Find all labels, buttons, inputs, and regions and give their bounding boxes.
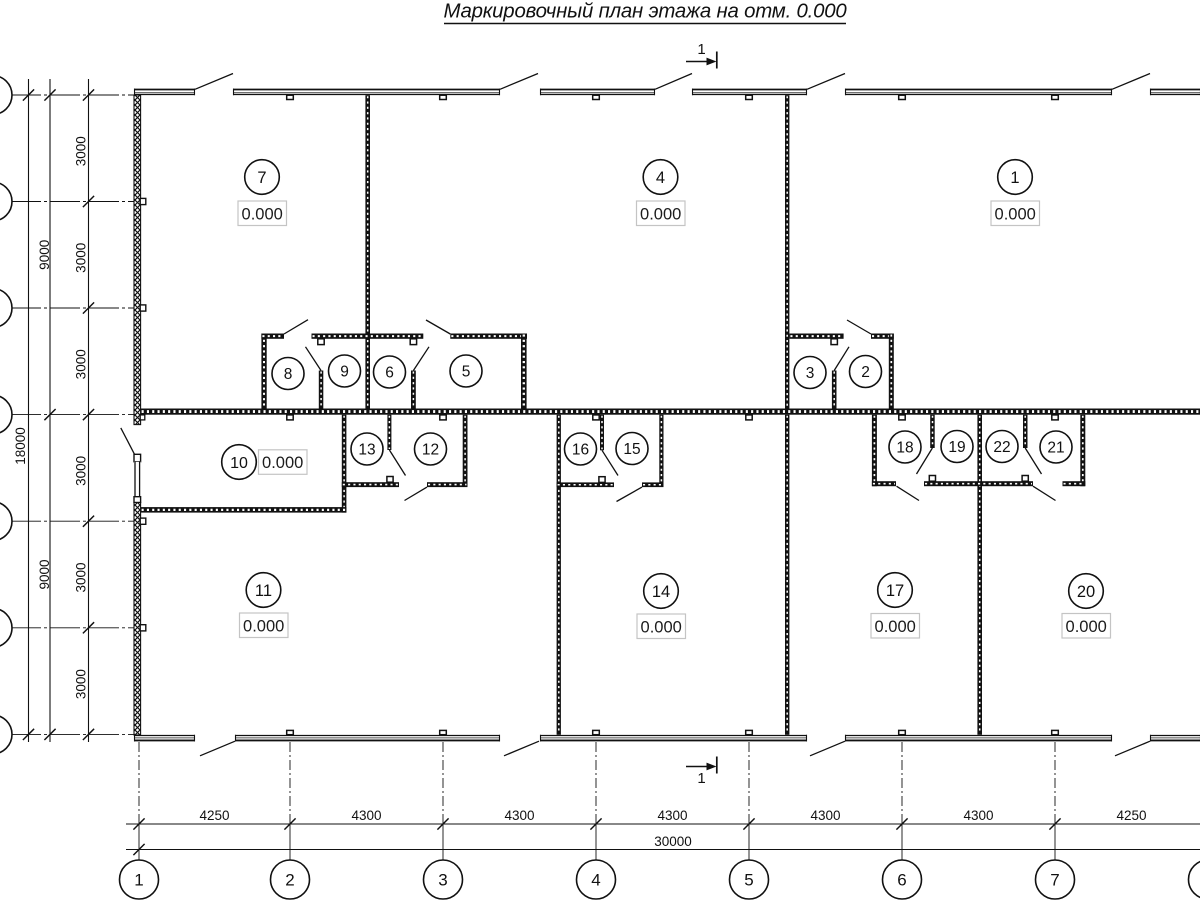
svg-text:0.000: 0.000 — [995, 205, 1036, 223]
svg-text:20: 20 — [1077, 583, 1095, 601]
svg-text:18: 18 — [896, 440, 913, 457]
svg-text:4300: 4300 — [810, 808, 840, 823]
svg-text:17: 17 — [886, 582, 904, 600]
svg-text:13: 13 — [358, 442, 375, 459]
svg-text:3: 3 — [438, 871, 447, 890]
svg-text:3: 3 — [806, 365, 815, 382]
svg-text:3000: 3000 — [74, 243, 89, 273]
svg-text:4250: 4250 — [1116, 808, 1146, 823]
svg-text:9000: 9000 — [37, 240, 52, 270]
svg-text:2: 2 — [285, 871, 294, 890]
svg-text:0.000: 0.000 — [875, 618, 916, 636]
svg-text:16: 16 — [572, 442, 589, 459]
svg-text:4250: 4250 — [199, 808, 229, 823]
svg-text:0.000: 0.000 — [242, 205, 283, 223]
svg-text:3000: 3000 — [74, 562, 89, 592]
svg-text:9: 9 — [340, 364, 349, 381]
svg-text:21: 21 — [1047, 440, 1064, 457]
svg-text:5: 5 — [744, 871, 753, 890]
svg-text:1: 1 — [1010, 169, 1019, 187]
svg-text:11: 11 — [255, 582, 272, 600]
svg-text:1: 1 — [134, 871, 143, 890]
svg-text:4300: 4300 — [963, 808, 993, 823]
svg-text:9000: 9000 — [37, 559, 52, 589]
svg-text:3000: 3000 — [74, 456, 89, 486]
svg-text:30000: 30000 — [654, 834, 692, 849]
svg-text:1: 1 — [697, 770, 705, 787]
svg-text:14: 14 — [652, 583, 670, 601]
svg-text:2: 2 — [861, 364, 870, 381]
svg-text:5: 5 — [462, 364, 471, 381]
svg-text:4300: 4300 — [351, 808, 381, 823]
svg-text:4300: 4300 — [504, 808, 534, 823]
svg-text:6: 6 — [897, 871, 906, 890]
svg-text:0.000: 0.000 — [640, 205, 681, 223]
svg-text:0.000: 0.000 — [1066, 618, 1107, 636]
svg-text:0.000: 0.000 — [243, 617, 284, 635]
svg-text:15: 15 — [623, 441, 640, 458]
svg-text:3000: 3000 — [74, 349, 89, 379]
svg-text:10: 10 — [230, 455, 248, 472]
svg-text:7: 7 — [1050, 871, 1059, 890]
svg-text:22: 22 — [993, 439, 1010, 456]
svg-text:Маркировочный план этажа на от: Маркировочный план этажа на отм. 0.000 — [443, 1, 847, 23]
svg-text:3000: 3000 — [74, 669, 89, 699]
svg-text:1: 1 — [697, 41, 705, 58]
svg-text:19: 19 — [948, 439, 965, 456]
svg-text:4300: 4300 — [657, 808, 687, 823]
svg-text:4: 4 — [591, 871, 600, 890]
svg-text:3000: 3000 — [74, 136, 89, 166]
svg-text:0.000: 0.000 — [641, 618, 682, 636]
svg-text:8: 8 — [284, 366, 293, 383]
svg-text:12: 12 — [422, 442, 439, 459]
svg-text:18000: 18000 — [13, 427, 28, 465]
svg-text:4: 4 — [656, 169, 665, 187]
svg-text:0.000: 0.000 — [262, 454, 303, 472]
svg-text:7: 7 — [257, 169, 266, 187]
svg-text:6: 6 — [385, 365, 394, 382]
